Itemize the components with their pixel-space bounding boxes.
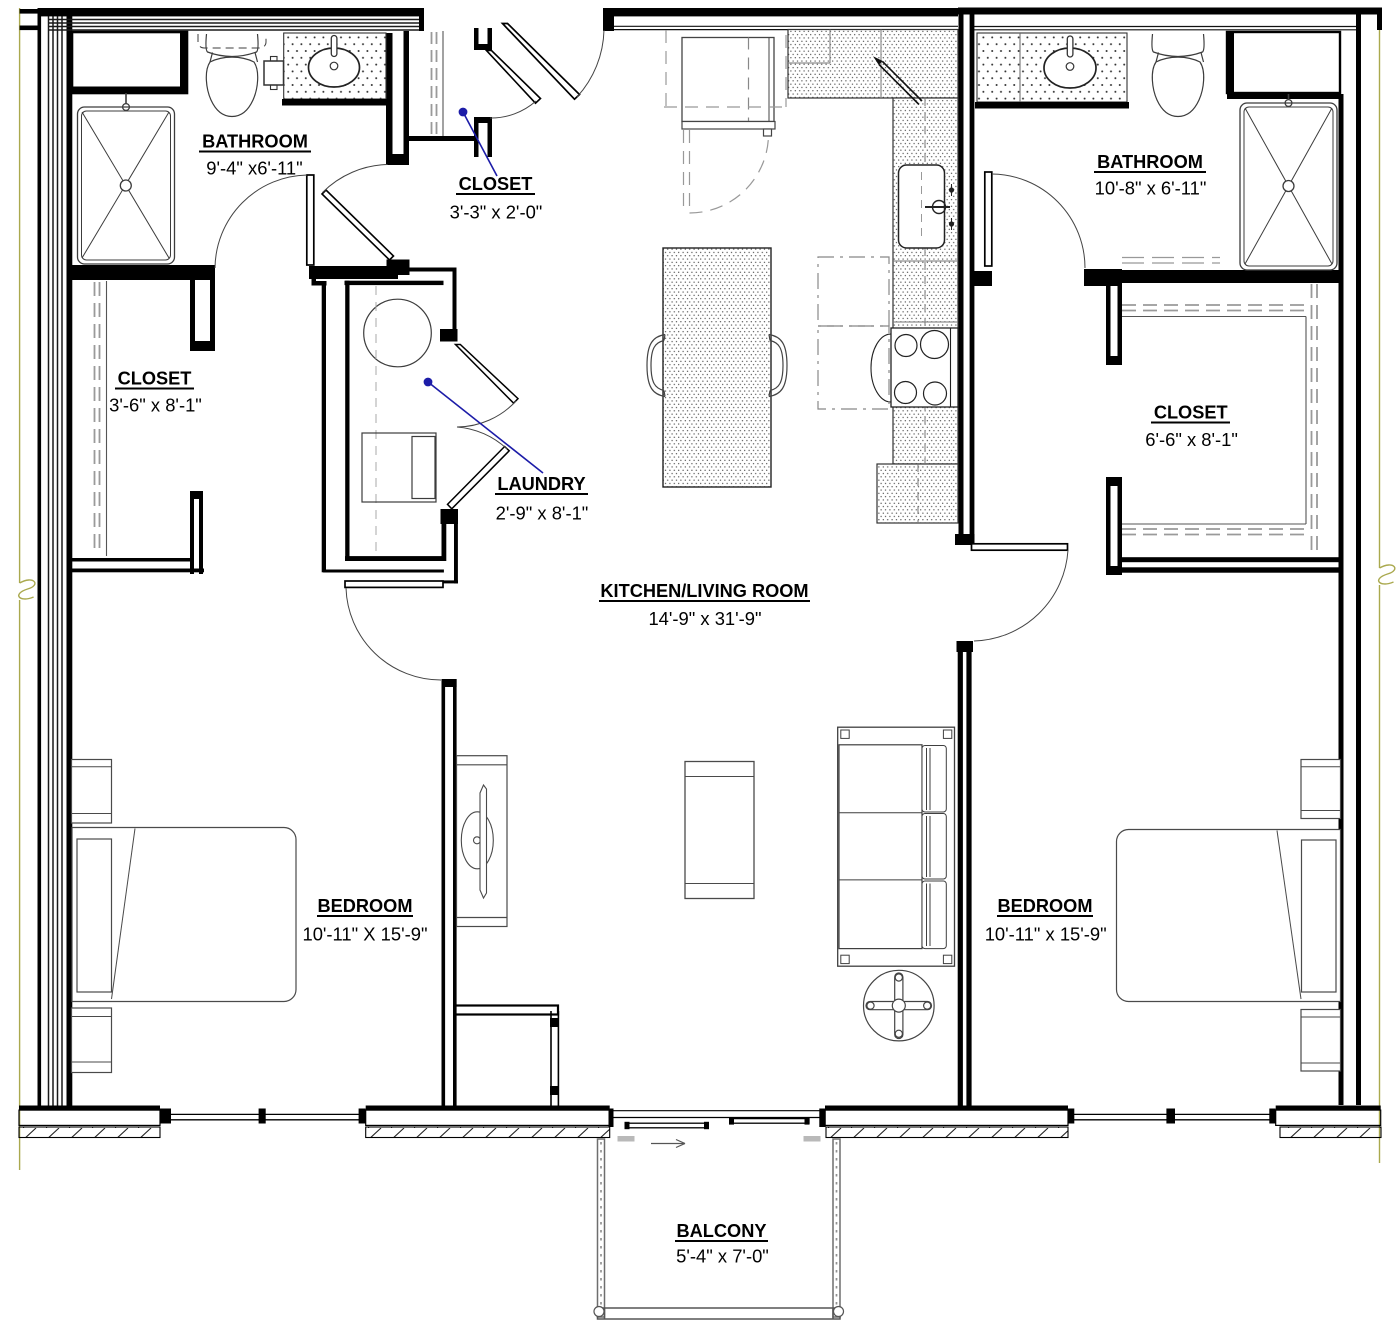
svg-text:2'-9" x 8'-1": 2'-9" x 8'-1": [496, 503, 589, 524]
svg-text:10'-8" x 6'-11": 10'-8" x 6'-11": [1095, 178, 1207, 199]
svg-text:3'-6" x 8'-1": 3'-6" x 8'-1": [109, 395, 202, 416]
svg-text:CLOSET: CLOSET: [118, 369, 192, 389]
svg-text:3'-3" x 2'-0": 3'-3" x 2'-0": [450, 202, 543, 223]
svg-text:KITCHEN/LIVING ROOM: KITCHEN/LIVING ROOM: [600, 581, 808, 601]
svg-text:BATHROOM: BATHROOM: [202, 132, 308, 152]
svg-text:10'-11" x 15'-9": 10'-11" x 15'-9": [985, 924, 1107, 945]
svg-text:LAUNDRY: LAUNDRY: [497, 474, 585, 494]
svg-text:5'-4" x 7'-0": 5'-4" x 7'-0": [676, 1246, 769, 1267]
svg-text:BEDROOM: BEDROOM: [998, 896, 1093, 916]
svg-text:14'-9" x 31'-9": 14'-9" x 31'-9": [648, 608, 761, 629]
svg-text:10'-11" X 15'-9": 10'-11" X 15'-9": [302, 924, 427, 945]
svg-text:CLOSET: CLOSET: [1154, 403, 1228, 423]
svg-text:BALCONY: BALCONY: [677, 1221, 767, 1241]
svg-text:BATHROOM: BATHROOM: [1097, 152, 1203, 172]
svg-text:6'-6" x 8'-1": 6'-6" x 8'-1": [1145, 429, 1238, 450]
svg-text:9'-4" x6'-11": 9'-4" x6'-11": [206, 158, 302, 179]
svg-text:CLOSET: CLOSET: [459, 174, 533, 194]
svg-text:BEDROOM: BEDROOM: [318, 896, 413, 916]
